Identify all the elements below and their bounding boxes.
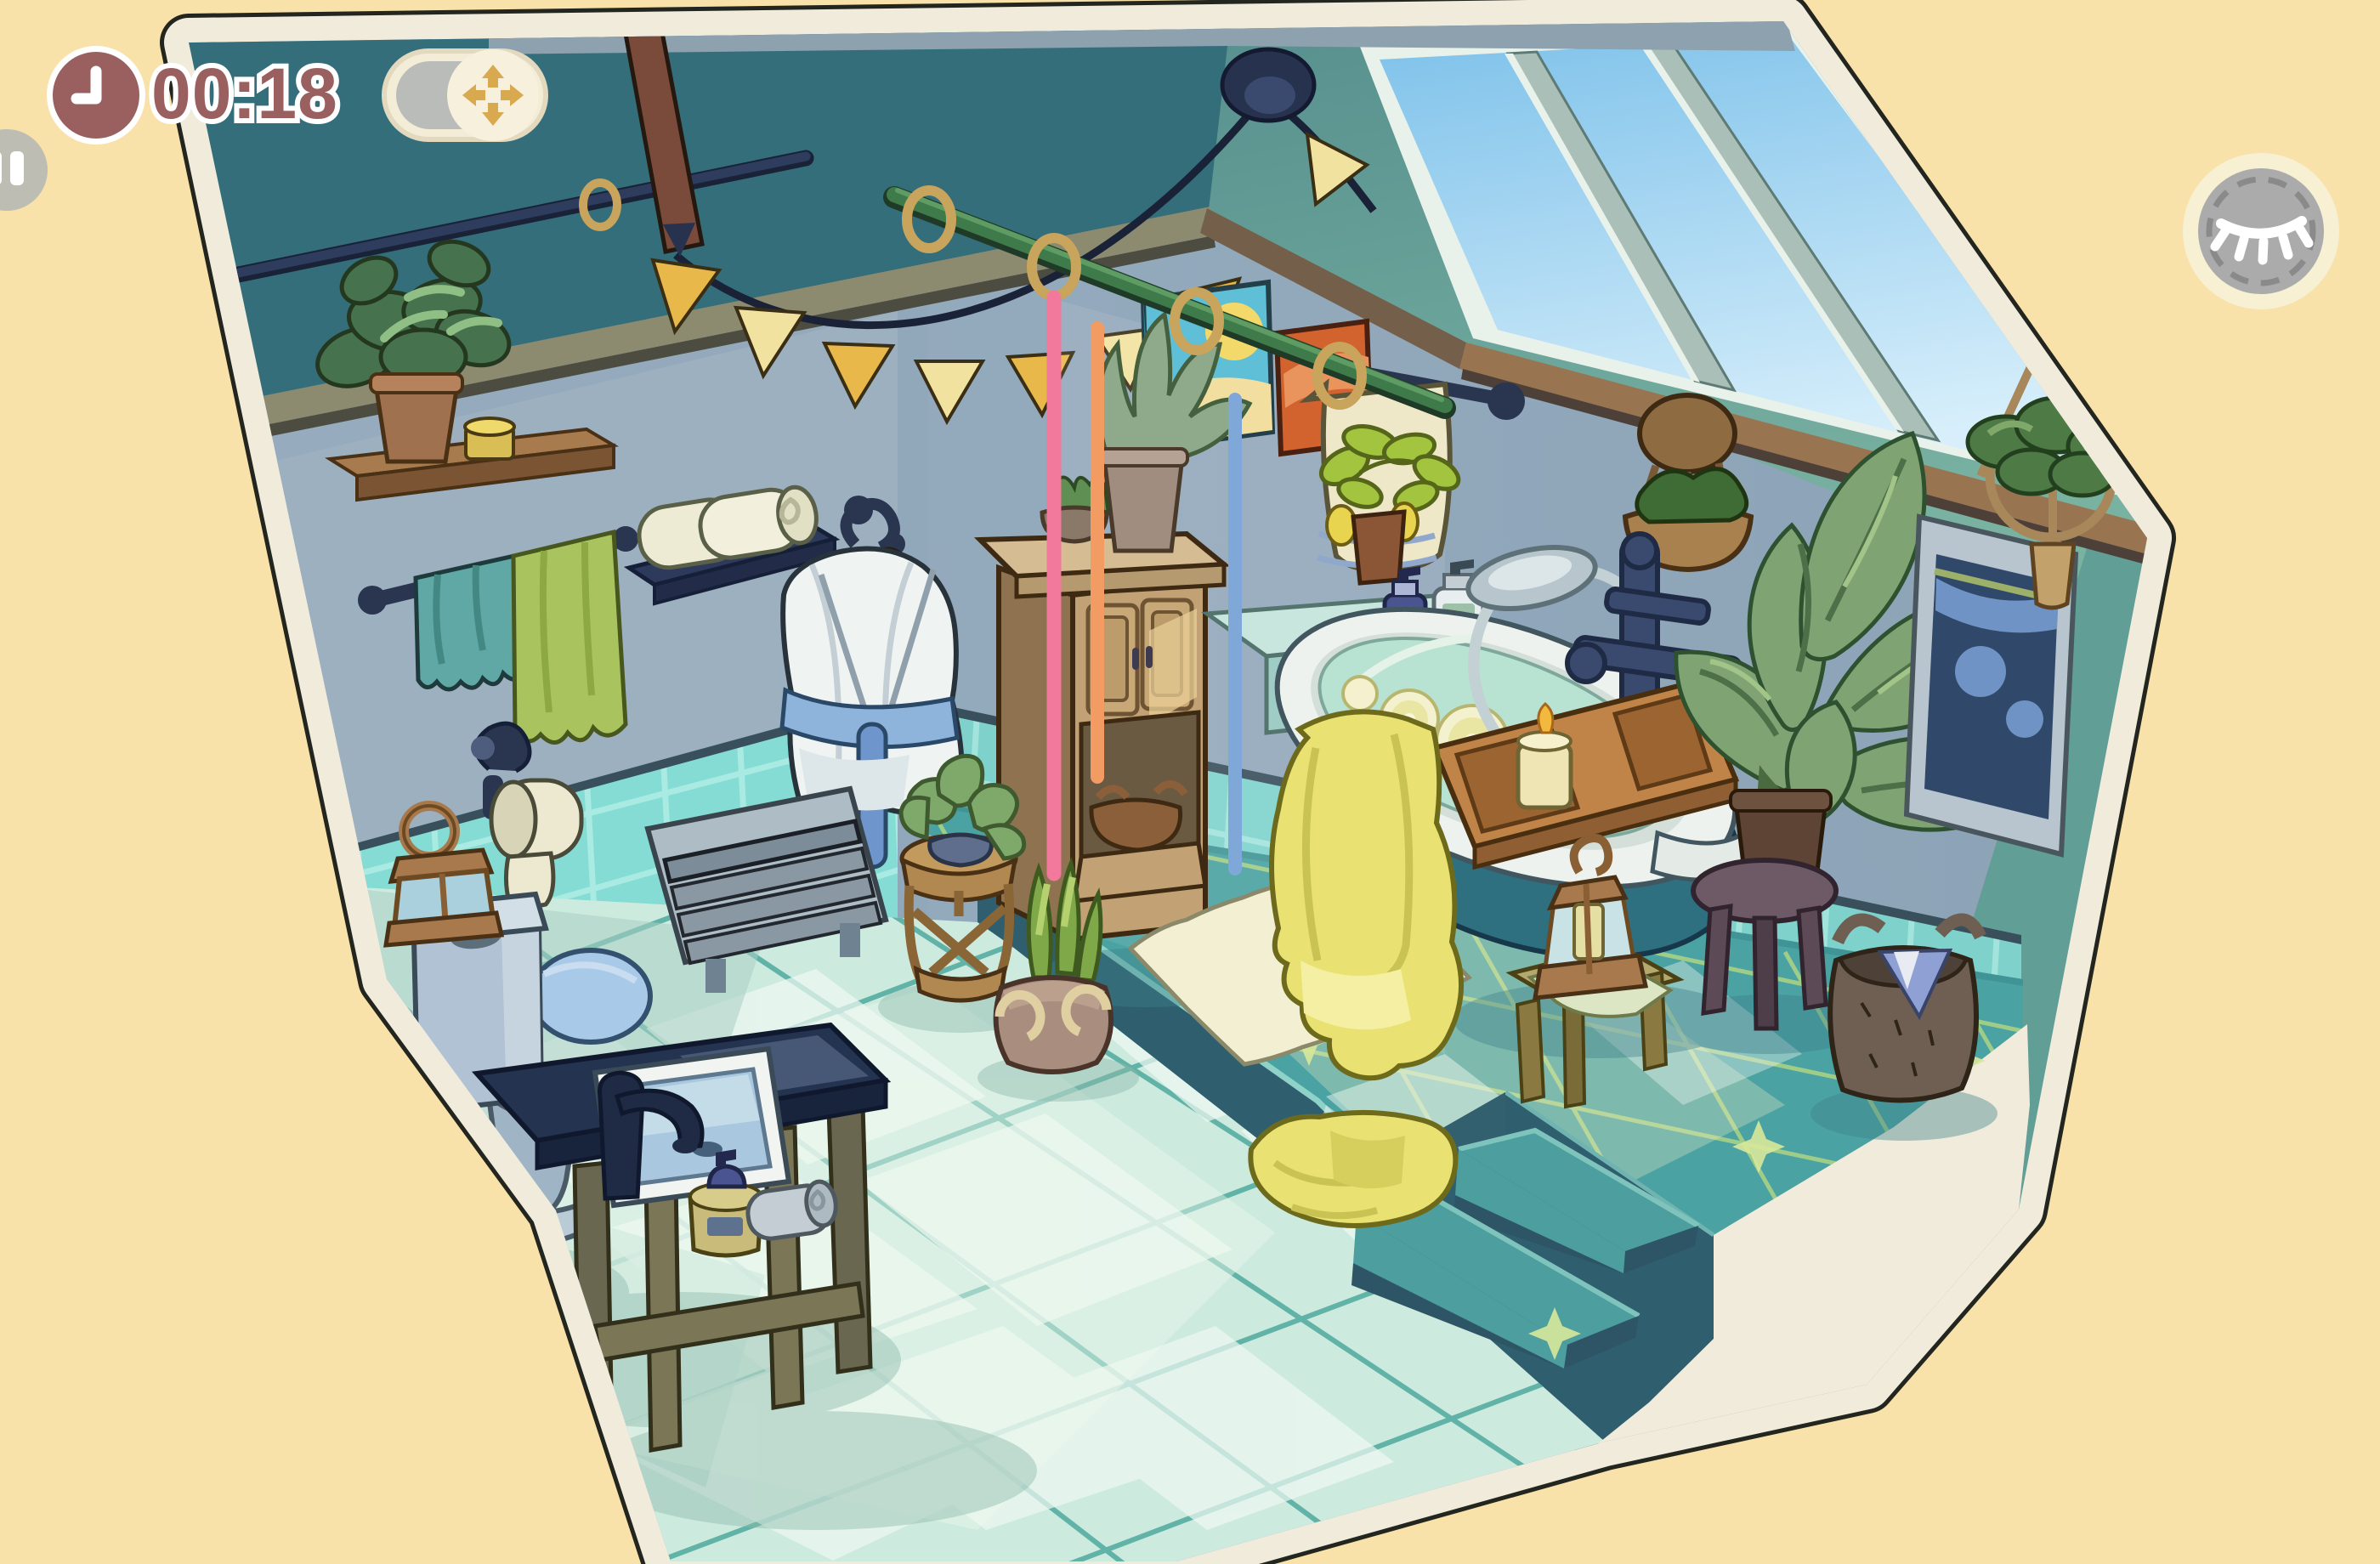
- svg-text:00:18: 00:18: [151, 54, 338, 133]
